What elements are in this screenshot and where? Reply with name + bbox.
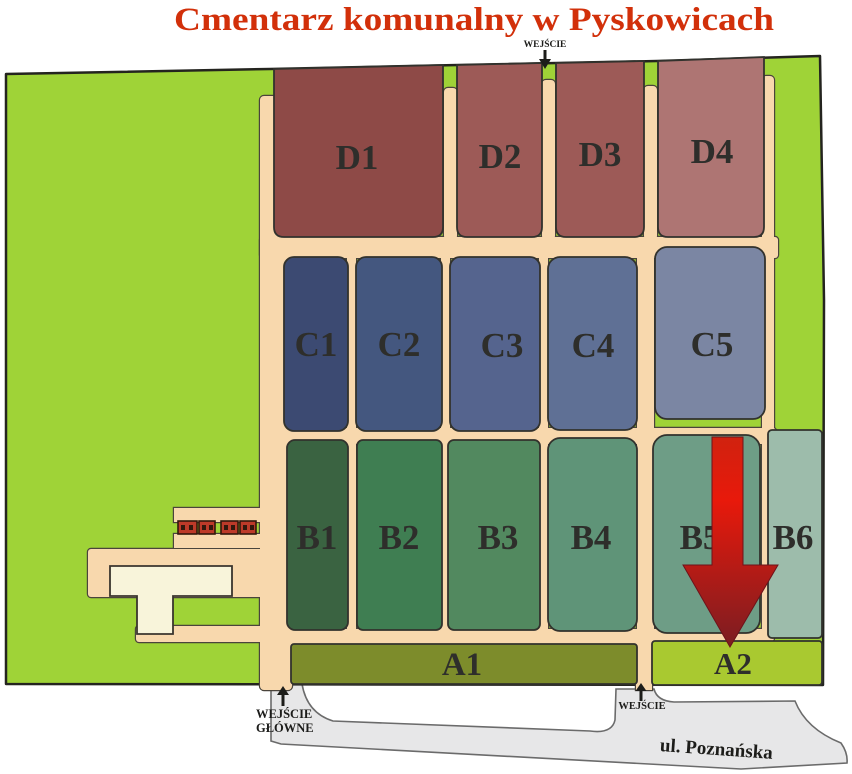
section-label-b6: B6 (773, 518, 814, 557)
cemetery-map-page: D1 D2 D3 D4 C1 C2 C3 C4 C5 B1 B2 B3 B4 B… (0, 0, 852, 774)
section-label-d4: D4 (691, 132, 734, 171)
section-label-c5: C5 (691, 325, 734, 364)
section-label-b1: B1 (297, 518, 338, 557)
page-title: Cmentarz komunalny w Pyskowicach (174, 2, 774, 38)
entrance-main-label-line2: GŁÓWNE (256, 721, 314, 735)
section-label-b2: B2 (379, 518, 420, 557)
section-label-a2: A2 (714, 646, 752, 681)
section-label-d1: D1 (336, 138, 379, 177)
red-structure-3 (221, 521, 238, 534)
section-label-b3: B3 (478, 518, 519, 557)
red-structure-1 (178, 521, 197, 534)
entrance-top-label: WEJŚCIE (524, 38, 567, 50)
section-label-d3: D3 (579, 135, 622, 174)
entrance-side-label: WEJŚCIE (618, 700, 665, 712)
section-label-c4: C4 (572, 326, 615, 365)
section-label-c2: C2 (378, 325, 421, 364)
cemetery-map-svg: D1 D2 D3 D4 C1 C2 C3 C4 C5 B1 B2 B3 B4 B… (0, 0, 852, 774)
section-label-b4: B4 (571, 518, 612, 557)
section-label-d2: D2 (479, 137, 522, 176)
section-label-a1: A1 (442, 647, 482, 683)
entrance-main-label-line1: WEJŚCIE (256, 707, 312, 721)
section-label-c3: C3 (481, 326, 524, 365)
section-label-c1: C1 (295, 325, 338, 364)
